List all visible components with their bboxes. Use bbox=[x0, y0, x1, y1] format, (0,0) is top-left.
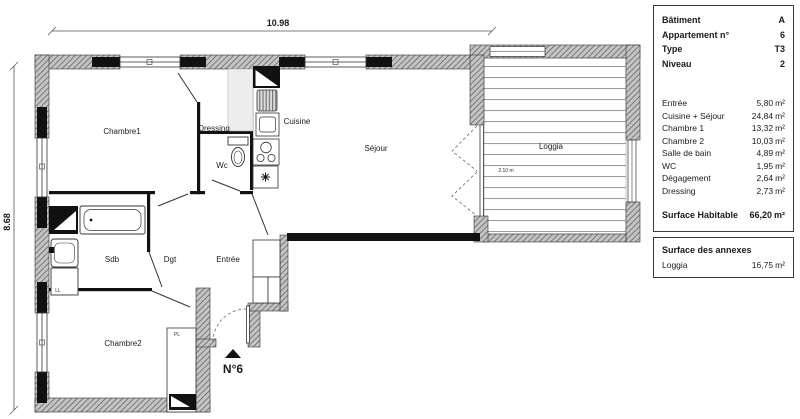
room-area-value: 2,73m² bbox=[757, 185, 785, 198]
floor-plan: LL PL Chambre1 Dressing Wc Cuisine Séjou… bbox=[0, 0, 650, 419]
room-label: Dégagement bbox=[662, 172, 711, 185]
room-label: Cuisine + Séjour bbox=[662, 110, 725, 123]
header-label: Niveau bbox=[662, 57, 692, 72]
loggia-guardrail bbox=[484, 234, 626, 242]
door-chambre1 bbox=[178, 73, 197, 102]
chambre2-closet: PL bbox=[167, 328, 196, 412]
bay-window-opening-symbol bbox=[452, 126, 477, 216]
header-row: Type T3 bbox=[662, 42, 785, 57]
room-area-value: 5,80m² bbox=[757, 97, 785, 110]
washer-label: LL bbox=[55, 288, 61, 294]
toilet-icon bbox=[228, 137, 248, 167]
room-area-row: Salle de bain 4,89m² bbox=[662, 147, 785, 160]
entry-door-leaf bbox=[247, 306, 250, 343]
door-cuisine bbox=[252, 194, 268, 235]
label-loggia-note: 2.10 m bbox=[498, 168, 513, 174]
header-label: Type bbox=[662, 42, 682, 57]
annex-value: 16,75m² bbox=[752, 260, 785, 270]
annex-label: Loggia bbox=[662, 260, 688, 270]
dimension-height: 8.68 bbox=[2, 213, 12, 231]
header-row: Appartement n° 6 bbox=[662, 28, 785, 43]
header-value: A bbox=[779, 13, 786, 28]
room-area-row: Cuisine + Séjour 24,84m² bbox=[662, 110, 785, 123]
room-area-value: 2,64m² bbox=[757, 172, 785, 185]
kitchen-fixtures bbox=[253, 66, 280, 188]
room-label: Dressing bbox=[662, 185, 696, 198]
annex-row: Loggia 16,75m² bbox=[662, 260, 785, 270]
closet-label: PL bbox=[174, 332, 180, 338]
surface-habitable-value: 66,20m² bbox=[749, 210, 785, 220]
label-chambre2: Chambre2 bbox=[104, 339, 142, 348]
label-sdb: Sdb bbox=[105, 255, 120, 264]
surface-habitable-row: Surface Habitable 66,20m² bbox=[662, 210, 785, 220]
header-row: Bâtiment A bbox=[662, 13, 785, 28]
annexes-box: Surface des annexes Loggia 16,75m² bbox=[653, 237, 794, 278]
door-wc bbox=[212, 180, 240, 191]
header-label: Appartement n° bbox=[662, 28, 729, 43]
bathroom-fixtures: LL bbox=[49, 206, 145, 295]
door-chambre2 bbox=[152, 291, 190, 307]
door-degagement bbox=[158, 194, 188, 206]
label-dgt: Dgt bbox=[164, 255, 177, 264]
room-area-row: Dégagement 2,64m² bbox=[662, 172, 785, 185]
dimension-width: 10.98 bbox=[267, 18, 290, 28]
fridge-icon bbox=[257, 90, 277, 111]
header-row: Niveau 2 bbox=[662, 57, 785, 72]
surface-habitable-label: Surface Habitable bbox=[662, 210, 738, 220]
label-sejour: Séjour bbox=[364, 144, 387, 153]
header-value: 2 bbox=[780, 57, 785, 72]
room-area-value: 24,84m² bbox=[752, 110, 785, 123]
entry-closets bbox=[253, 240, 280, 303]
label-chambre1: Chambre1 bbox=[103, 127, 141, 136]
room-area-value: 4,89m² bbox=[757, 147, 785, 160]
label-wc: Wc bbox=[216, 161, 228, 170]
info-panel: Bâtiment A Appartement n° 6 Type T3 Nive… bbox=[653, 5, 794, 278]
header-value: T3 bbox=[774, 42, 785, 57]
entry-door-swing-arc bbox=[213, 309, 247, 342]
room-area-value: 13,32m² bbox=[752, 122, 785, 135]
label-unit-number: N°6 bbox=[223, 362, 243, 376]
sejour-south-wall bbox=[287, 233, 480, 241]
room-area-row: Chambre 2 10,03m² bbox=[662, 135, 785, 148]
entry-direction-triangle bbox=[225, 349, 241, 358]
room-label: Entrée bbox=[662, 97, 687, 110]
header-label: Bâtiment bbox=[662, 13, 701, 28]
room-label: Chambre 2 bbox=[662, 135, 704, 148]
room-label: Salle de bain bbox=[662, 147, 711, 160]
door-sdb bbox=[149, 252, 162, 287]
room-area-row: Chambre 1 13,32m² bbox=[662, 122, 785, 135]
dressing-shelves bbox=[228, 69, 253, 131]
room-area-row: Dressing 2,73m² bbox=[662, 185, 785, 198]
room-label: Chambre 1 bbox=[662, 122, 704, 135]
header-value: 6 bbox=[780, 28, 785, 43]
room-area-row: WC 1,95m² bbox=[662, 160, 785, 173]
room-area-value: 1,95m² bbox=[757, 160, 785, 173]
room-areas-list: Entrée 5,80m² Cuisine + Séjour 24,84m² C… bbox=[662, 97, 785, 197]
annexes-title: Surface des annexes bbox=[662, 245, 785, 255]
room-area-row: Entrée 5,80m² bbox=[662, 97, 785, 110]
label-dressing: Dressing bbox=[198, 124, 230, 133]
label-entree: Entrée bbox=[216, 255, 240, 264]
stove-icon bbox=[253, 139, 279, 165]
room-area-value: 10,03m² bbox=[752, 135, 785, 148]
label-loggia: Loggia bbox=[539, 142, 564, 151]
room-label: WC bbox=[662, 160, 676, 173]
apartment-info-box: Bâtiment A Appartement n° 6 Type T3 Nive… bbox=[653, 5, 794, 232]
label-cuisine: Cuisine bbox=[284, 117, 311, 126]
